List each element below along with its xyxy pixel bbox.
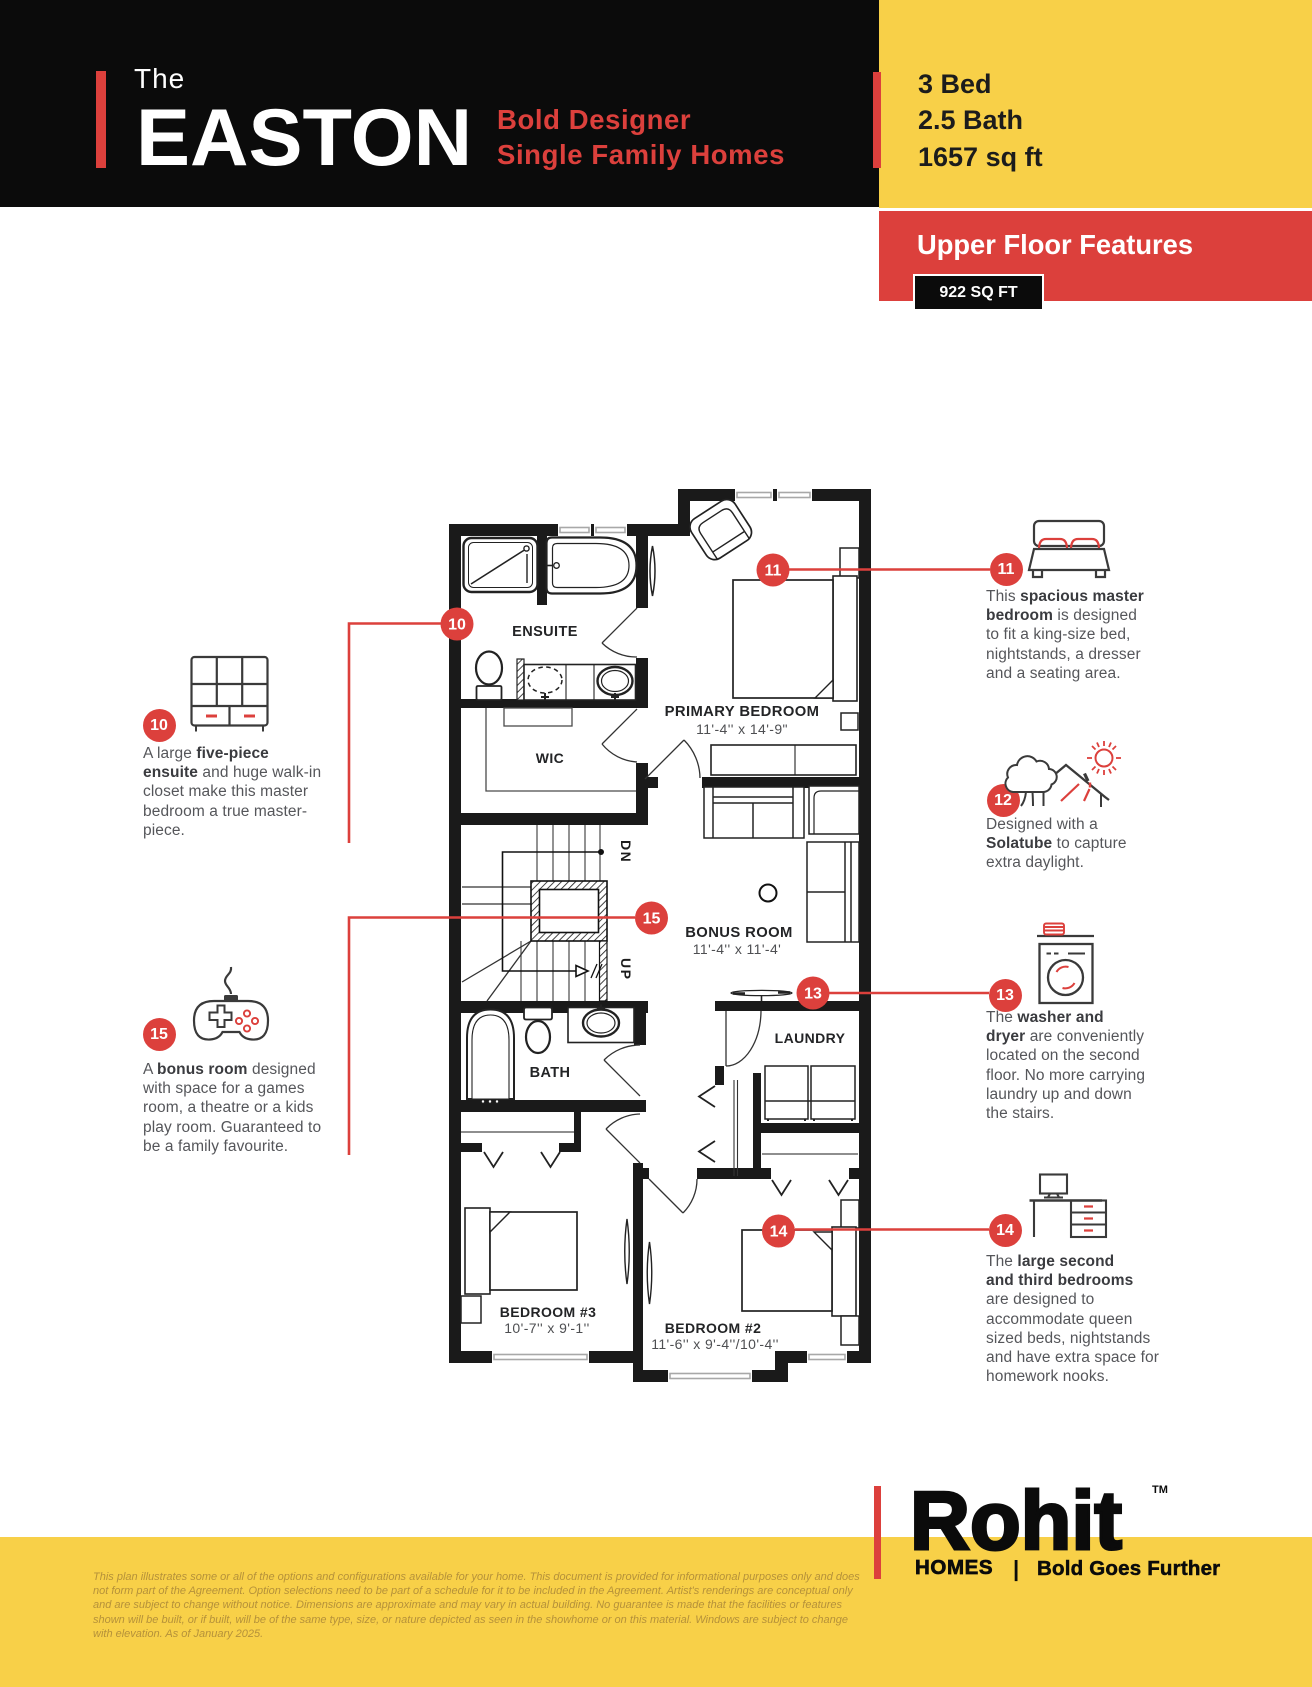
svg-text:BEDROOM #2: BEDROOM #2 (665, 1320, 762, 1336)
svg-text:11: 11 (765, 563, 782, 580)
svg-text:ENSUITE: ENSUITE (512, 624, 578, 640)
svg-text:PRIMARY BEDROOM: PRIMARY BEDROOM (665, 704, 820, 720)
svg-text:10: 10 (448, 617, 466, 634)
svg-text:11'-4'' x 11'-4': 11'-4'' x 11'-4' (693, 941, 782, 957)
svg-text:11'-6'' x 9'-4''/10'-4'': 11'-6'' x 9'-4''/10'-4'' (651, 1336, 779, 1352)
svg-text:11'-4'' x 14'-9": 11'-4'' x 14'-9" (696, 721, 788, 737)
svg-text:WIC: WIC (536, 750, 564, 766)
svg-text:LAUNDRY: LAUNDRY (775, 1030, 846, 1046)
svg-text:13: 13 (804, 986, 822, 1003)
svg-text:UP: UP (618, 958, 634, 980)
svg-text:10'-7'' x 9'-1'': 10'-7'' x 9'-1'' (504, 1320, 589, 1336)
svg-text:DN: DN (618, 840, 634, 863)
svg-text:15: 15 (643, 911, 661, 928)
svg-text:BONUS ROOM: BONUS ROOM (685, 925, 793, 941)
svg-text:14: 14 (770, 1224, 788, 1241)
svg-text:BATH: BATH (530, 1065, 571, 1081)
svg-text:BEDROOM #3: BEDROOM #3 (500, 1304, 597, 1320)
